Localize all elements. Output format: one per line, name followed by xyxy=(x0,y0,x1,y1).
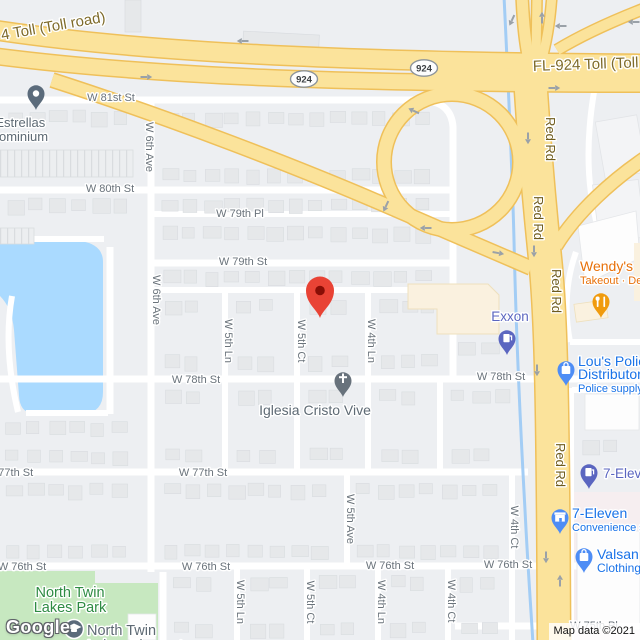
las-estrellas-condominium-label-line[interactable]: Las Estrellas xyxy=(0,115,46,130)
street-label: W 78th St xyxy=(477,371,525,383)
north-twin-lakes-park-label[interactable]: North TwinLakes Park xyxy=(34,585,107,616)
street-label: W 4th Ct xyxy=(508,506,520,549)
house xyxy=(113,546,126,557)
house xyxy=(70,421,85,432)
house xyxy=(340,576,356,588)
house xyxy=(270,624,284,638)
house xyxy=(186,485,200,499)
house xyxy=(49,485,64,496)
house xyxy=(72,200,86,211)
house xyxy=(225,228,239,240)
house xyxy=(91,424,103,437)
map-canvas[interactable]: 924924 W 81st StW 80th StW 79th PlW 79th… xyxy=(0,0,640,640)
house xyxy=(583,441,600,455)
lous-police-distributors-label-line[interactable]: Police supply store xyxy=(578,383,640,395)
wendys-label-line[interactable]: Wendy's xyxy=(580,258,633,274)
house xyxy=(185,544,200,556)
valsan-label[interactable]: ValsanClothing store xyxy=(597,546,640,575)
seven-eleven-fuel-label[interactable]: 7-Eleven xyxy=(603,466,640,481)
house xyxy=(416,271,432,281)
house xyxy=(203,227,221,239)
street-label: W 5th Ln xyxy=(234,580,246,624)
seven-eleven-fuel-label-line[interactable]: 7-Eleven xyxy=(603,466,640,481)
house xyxy=(205,545,219,557)
exxon-label-line[interactable]: Exxon xyxy=(491,309,529,324)
highway-label: Red Rd xyxy=(531,196,546,240)
house xyxy=(290,270,305,283)
iglesia-cristo-vive-label-line[interactable]: Iglesia Cristo Vive xyxy=(259,402,371,418)
house xyxy=(7,546,19,558)
house xyxy=(267,169,280,183)
street-label: W 76th St xyxy=(182,561,230,573)
house xyxy=(382,450,398,462)
house xyxy=(419,484,432,494)
house xyxy=(268,271,285,286)
house xyxy=(224,272,239,283)
house xyxy=(260,450,276,463)
house xyxy=(229,486,246,499)
house xyxy=(604,440,617,452)
house xyxy=(458,343,475,356)
house xyxy=(460,578,472,593)
house xyxy=(112,422,127,433)
highway-label: Red Rd xyxy=(553,443,568,487)
house xyxy=(186,392,199,404)
street-label: W 4th Ct xyxy=(445,580,457,623)
house xyxy=(269,201,284,213)
house xyxy=(312,485,326,497)
house xyxy=(91,112,107,127)
house xyxy=(225,169,239,183)
house xyxy=(332,356,348,367)
house xyxy=(69,546,83,558)
house xyxy=(29,198,43,210)
house xyxy=(48,545,62,558)
street-label: W 76th St xyxy=(484,559,532,571)
house xyxy=(183,199,197,212)
house xyxy=(483,484,497,495)
house xyxy=(341,623,354,635)
condo-strip xyxy=(0,228,34,244)
street-label: W 81st St xyxy=(87,92,135,104)
house xyxy=(239,391,255,405)
house xyxy=(352,112,367,124)
house xyxy=(50,421,66,434)
house xyxy=(394,271,407,282)
house xyxy=(474,449,489,461)
house xyxy=(422,354,438,366)
house xyxy=(92,545,108,557)
house xyxy=(451,390,463,400)
house xyxy=(237,450,250,461)
house xyxy=(311,546,328,559)
house xyxy=(251,578,268,591)
house xyxy=(26,422,39,434)
house xyxy=(238,357,252,370)
map-svg[interactable]: 924924 W 81st StW 80th StW 79th PlW 79th… xyxy=(0,0,640,640)
house xyxy=(186,450,202,462)
house xyxy=(247,170,259,184)
house xyxy=(269,112,284,123)
street-label: W 4th Ln xyxy=(365,319,377,363)
house xyxy=(197,578,211,592)
house xyxy=(357,545,373,557)
house xyxy=(165,355,180,368)
las-estrellas-condominium-label[interactable]: Las EstrellasCondominium xyxy=(0,115,48,144)
wendys-label-line[interactable]: Takeout · Delivery xyxy=(580,275,640,287)
house xyxy=(416,198,429,209)
house xyxy=(392,575,406,587)
google-watermark[interactable]: Google xyxy=(6,617,70,638)
house xyxy=(8,201,25,216)
house xyxy=(113,452,128,466)
svg-text:924: 924 xyxy=(296,74,313,85)
house xyxy=(381,356,394,369)
house xyxy=(49,111,67,122)
map-attribution[interactable]: Map data ©2021 xyxy=(549,623,640,640)
house xyxy=(319,575,337,588)
house xyxy=(5,450,18,460)
house xyxy=(245,271,259,282)
house xyxy=(236,301,250,313)
house xyxy=(356,483,369,493)
north-twin-lakes-elementary-label-line[interactable]: North Twin xyxy=(87,623,156,639)
house xyxy=(329,271,342,283)
house xyxy=(380,300,398,313)
house xyxy=(394,227,410,241)
house xyxy=(320,624,334,635)
house xyxy=(390,624,406,638)
house xyxy=(269,485,281,497)
house xyxy=(442,485,457,499)
street-label: W 5th Ct xyxy=(295,320,307,363)
lous-police-distributors-label-line[interactable]: Distributors xyxy=(578,366,640,382)
street-label: W 76th St xyxy=(0,561,46,573)
house xyxy=(353,228,368,239)
house xyxy=(28,450,41,462)
house xyxy=(330,448,342,459)
exxon-label[interactable]: Exxon xyxy=(491,309,529,324)
house xyxy=(165,484,181,494)
svg-text:924: 924 xyxy=(416,63,433,74)
house xyxy=(402,450,418,463)
house xyxy=(291,485,305,500)
house xyxy=(185,301,197,312)
house xyxy=(331,301,346,315)
house xyxy=(352,169,370,180)
house xyxy=(496,390,510,403)
house xyxy=(330,111,345,122)
house xyxy=(163,169,179,180)
house xyxy=(182,228,194,239)
house xyxy=(402,392,415,405)
street-label: W 80th St xyxy=(86,183,134,195)
house xyxy=(308,227,322,238)
street-label: W 79th Pl xyxy=(216,208,264,220)
house xyxy=(440,546,456,557)
house xyxy=(463,485,477,495)
street-label: W 5th Ln xyxy=(222,319,234,363)
valsan-label-line[interactable]: Clothing store xyxy=(597,561,640,575)
house xyxy=(292,546,309,557)
house xyxy=(378,485,394,499)
house xyxy=(481,577,495,589)
house xyxy=(185,357,197,371)
street-label: W 77th St xyxy=(179,467,227,479)
house xyxy=(195,625,212,638)
house xyxy=(410,577,423,590)
house xyxy=(166,390,182,403)
street-label: W 6th Ave xyxy=(143,122,155,172)
house xyxy=(377,545,389,557)
house xyxy=(248,483,264,495)
house xyxy=(49,199,65,213)
house xyxy=(267,228,284,242)
house xyxy=(260,299,273,310)
house xyxy=(399,485,414,498)
street-label: W 76th St xyxy=(366,560,414,572)
house xyxy=(270,577,288,588)
house xyxy=(379,390,395,401)
seven-eleven-label-line[interactable]: Convenience store xyxy=(572,522,640,534)
house xyxy=(71,451,88,461)
street-label: W 6th Ave xyxy=(150,275,162,325)
house xyxy=(482,343,500,354)
valsan-label-line[interactable]: Valsan xyxy=(597,546,639,562)
house xyxy=(205,170,220,182)
house xyxy=(90,483,103,494)
wendys-label[interactable]: Wendy'sTakeout · Delivery xyxy=(580,258,640,287)
house xyxy=(402,355,415,368)
house xyxy=(207,484,221,497)
lous-building xyxy=(585,394,639,430)
house xyxy=(114,199,127,213)
house xyxy=(412,622,425,632)
house xyxy=(246,112,260,126)
house xyxy=(310,448,328,460)
house xyxy=(331,228,346,242)
house xyxy=(289,114,304,126)
house xyxy=(224,113,238,124)
house xyxy=(227,544,240,556)
house xyxy=(462,623,478,633)
house xyxy=(289,199,302,214)
highway-road xyxy=(522,0,529,60)
house xyxy=(352,272,370,285)
house xyxy=(331,199,347,209)
house xyxy=(206,273,218,287)
house xyxy=(173,578,190,588)
north-twin-lakes-park-label-line[interactable]: North Twin xyxy=(35,585,104,601)
route-shield-924: 924 xyxy=(411,60,438,76)
house xyxy=(6,486,23,496)
house xyxy=(165,301,182,315)
north-twin-lakes-park-label-line[interactable]: Lakes Park xyxy=(34,600,107,616)
house xyxy=(27,545,39,559)
house xyxy=(68,486,82,500)
house xyxy=(92,453,105,464)
house xyxy=(248,227,264,240)
lous-police-distributors-label[interactable]: Lou's PoliceDistributorsPolice supply st… xyxy=(578,353,640,395)
house xyxy=(372,112,385,126)
house xyxy=(464,546,479,558)
house xyxy=(400,546,415,558)
house xyxy=(309,390,326,403)
street-label: W 5th Ct xyxy=(304,581,316,624)
house xyxy=(6,423,21,435)
house xyxy=(166,449,180,460)
las-estrellas-condominium-label-line[interactable]: Condominium xyxy=(0,129,48,144)
house xyxy=(308,200,321,210)
street-label: W 78th St xyxy=(172,374,220,386)
house xyxy=(421,546,435,560)
street-label: W 79th St xyxy=(219,256,267,268)
house xyxy=(482,623,497,634)
house xyxy=(484,546,498,559)
house xyxy=(206,113,223,127)
house xyxy=(184,270,197,283)
condo-strip xyxy=(0,150,133,177)
house xyxy=(28,483,44,495)
house xyxy=(310,113,324,127)
house xyxy=(414,169,430,183)
house xyxy=(93,199,111,214)
house xyxy=(473,392,491,403)
house xyxy=(112,484,128,497)
house xyxy=(308,357,322,372)
house xyxy=(164,270,181,283)
house xyxy=(248,545,262,557)
house xyxy=(162,201,178,212)
street-label: W 4th Ln xyxy=(375,580,387,624)
house xyxy=(416,112,430,124)
house xyxy=(250,624,265,638)
house xyxy=(258,357,274,372)
house xyxy=(73,110,85,122)
house xyxy=(270,546,285,557)
highway-label: Red Rd xyxy=(549,269,564,313)
street-label: W 77th St xyxy=(0,467,33,479)
street-label: W 5th Ave xyxy=(344,494,356,544)
house xyxy=(114,112,126,125)
route-shield-924: 924 xyxy=(291,71,318,87)
iglesia-cristo-vive-label[interactable]: Iglesia Cristo Vive xyxy=(259,402,371,418)
house xyxy=(395,171,412,184)
house xyxy=(184,170,196,181)
highway-road xyxy=(536,0,537,60)
house xyxy=(374,272,392,287)
house xyxy=(50,450,63,462)
highway-label: Red Rd xyxy=(543,117,558,161)
house xyxy=(287,226,303,240)
house xyxy=(165,545,177,559)
house xyxy=(452,450,470,464)
house xyxy=(163,226,178,239)
house xyxy=(174,622,188,632)
house xyxy=(373,229,388,243)
seven-eleven-label-line[interactable]: 7-Eleven xyxy=(572,505,627,521)
